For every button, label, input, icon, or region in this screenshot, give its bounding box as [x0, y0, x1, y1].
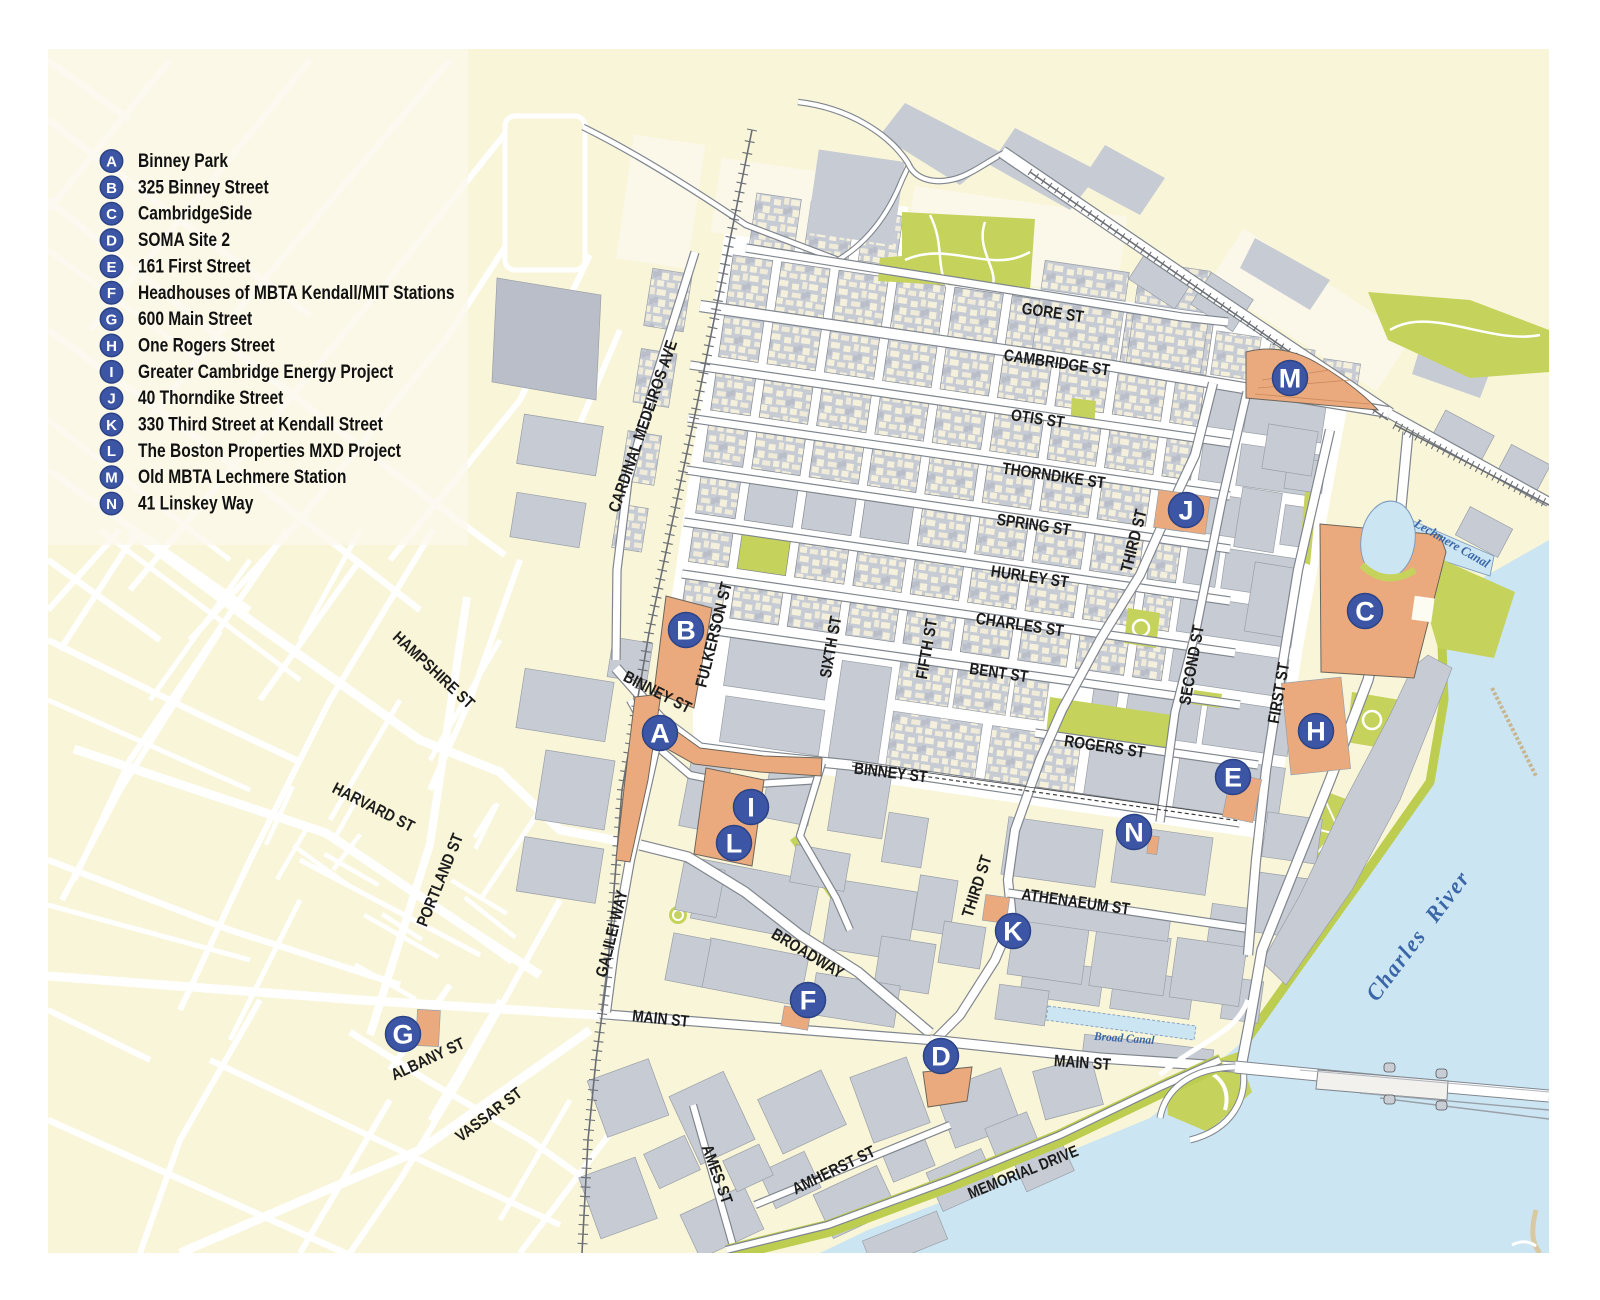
svg-text:SOMA Site 2: SOMA Site 2: [138, 229, 230, 251]
svg-text:K: K: [1003, 917, 1023, 947]
svg-text:D: D: [931, 1042, 951, 1072]
svg-text:K: K: [106, 417, 117, 434]
svg-text:C: C: [106, 206, 117, 223]
svg-text:J: J: [107, 391, 115, 408]
svg-text:N: N: [1124, 818, 1144, 848]
svg-text:I: I: [109, 364, 113, 381]
svg-text:330 Third Street at Kendall St: 330 Third Street at Kendall Street: [138, 413, 383, 435]
svg-text:L: L: [726, 829, 743, 859]
svg-text:A: A: [106, 153, 117, 170]
svg-text:F: F: [800, 986, 817, 1016]
svg-text:The Boston Properties MXD Proj: The Boston Properties MXD Project: [138, 439, 401, 461]
svg-text:C: C: [1355, 597, 1375, 627]
svg-text:Greater Cambridge Energy Proje: Greater Cambridge Energy Project: [138, 360, 393, 382]
svg-text:I: I: [747, 793, 755, 823]
svg-text:G: G: [106, 312, 118, 329]
svg-text:E: E: [106, 259, 116, 276]
svg-text:A: A: [650, 719, 670, 749]
svg-text:Headhouses of MBTA Kendall/MIT: Headhouses of MBTA Kendall/MIT Stations: [138, 281, 455, 303]
svg-text:Binney Park: Binney Park: [138, 150, 228, 172]
svg-text:M: M: [105, 470, 118, 487]
svg-text:E: E: [1224, 763, 1242, 793]
svg-text:41 Linskey Way: 41 Linskey Way: [138, 492, 254, 514]
svg-text:M: M: [1279, 364, 1302, 394]
svg-text:D: D: [106, 233, 117, 250]
svg-text:CambridgeSide: CambridgeSide: [138, 202, 252, 224]
svg-text:H: H: [1306, 717, 1326, 747]
svg-text:G: G: [392, 1020, 413, 1050]
svg-text:H: H: [106, 338, 117, 355]
svg-text:F: F: [107, 285, 116, 302]
svg-text:B: B: [676, 616, 696, 646]
svg-text:600 Main Street: 600 Main Street: [138, 308, 252, 330]
svg-text:40 Thorndike Street: 40 Thorndike Street: [138, 387, 284, 409]
svg-text:L: L: [107, 443, 116, 460]
svg-text:B: B: [106, 180, 117, 197]
svg-text:161 First Street: 161 First Street: [138, 255, 251, 277]
svg-text:J: J: [1178, 496, 1193, 526]
svg-text:One Rogers Street: One Rogers Street: [138, 334, 275, 356]
svg-text:Old MBTA Lechmere Station: Old MBTA Lechmere Station: [138, 466, 346, 488]
svg-text:N: N: [106, 496, 117, 513]
svg-text:325 Binney Street: 325 Binney Street: [138, 176, 269, 198]
